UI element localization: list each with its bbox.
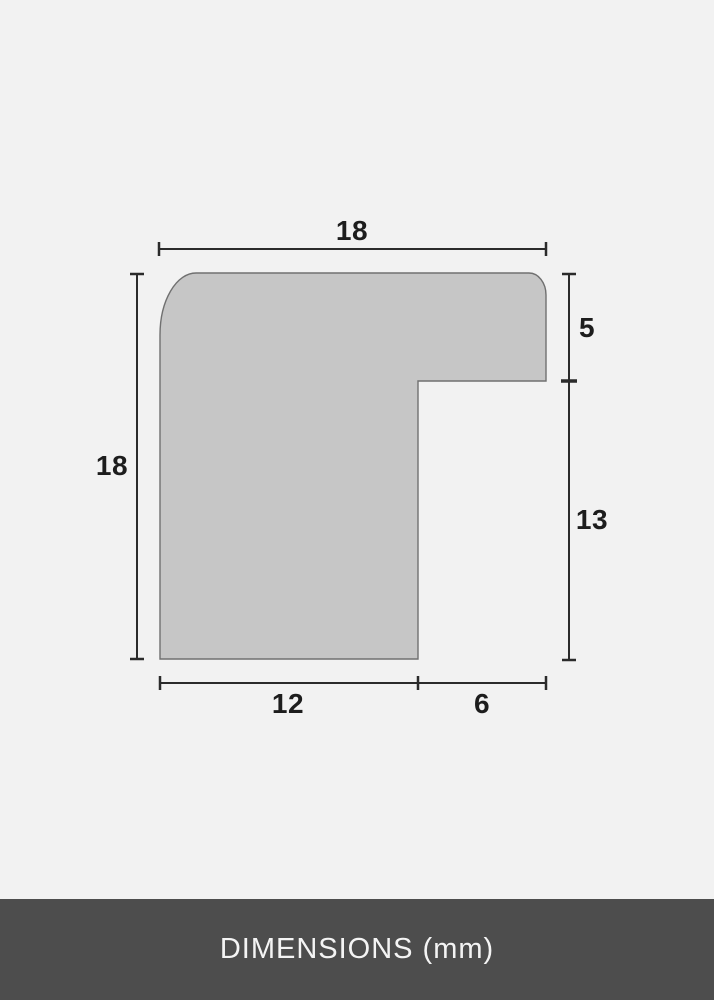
footer-title: DIMENSIONS (mm) [220,933,494,966]
frame-profile-drawing [0,0,714,1000]
dim-line-left-height [130,274,144,659]
dim-label-left-height: 18 [96,452,128,480]
dim-line-right-heights [561,274,577,660]
dim-label-top-width: 18 [336,217,368,245]
footer-bar: DIMENSIONS (mm) [0,899,714,1000]
frame-profile-shape [160,273,546,659]
dim-label-right-lower-height: 13 [576,506,608,534]
diagram-canvas: 18 18 5 13 12 6 DIMENSIONS (mm) [0,0,714,1000]
dim-label-right-upper-height: 5 [579,314,595,342]
dim-label-bottom-right-width: 6 [474,690,490,718]
dim-label-bottom-left-width: 12 [272,690,304,718]
